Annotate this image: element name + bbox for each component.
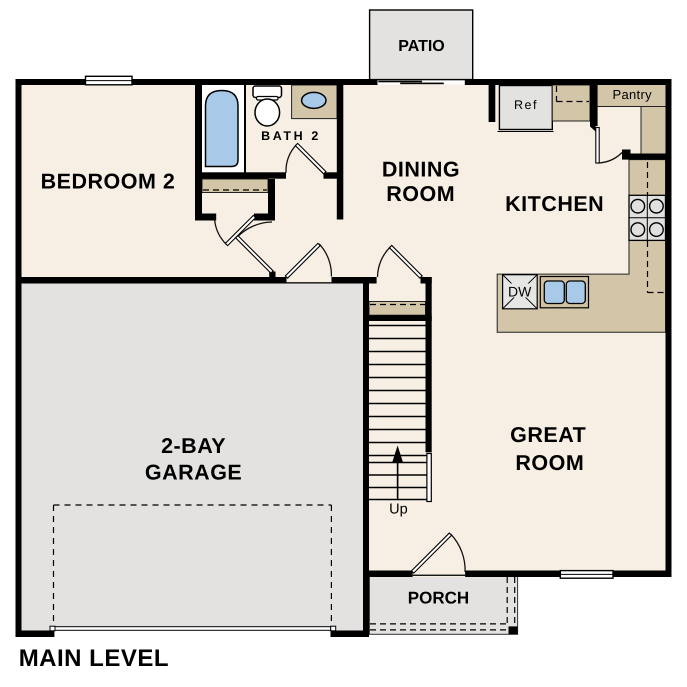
svg-text:ROOM: ROOM: [386, 182, 455, 206]
svg-text:2-BAY: 2-BAY: [161, 434, 226, 458]
svg-text:GARAGE: GARAGE: [145, 461, 242, 485]
svg-text:BATH 2: BATH 2: [261, 129, 321, 143]
svg-text:BEDROOM 2: BEDROOM 2: [41, 169, 176, 193]
svg-text:KITCHEN: KITCHEN: [505, 192, 604, 216]
svg-text:DINING: DINING: [382, 158, 460, 182]
svg-text:PORCH: PORCH: [408, 589, 469, 608]
svg-text:ROOM: ROOM: [515, 451, 584, 475]
svg-text:GREAT: GREAT: [510, 423, 586, 447]
svg-text:Up: Up: [389, 502, 408, 518]
svg-text:MAIN LEVEL: MAIN LEVEL: [19, 645, 169, 672]
svg-text:Pantry: Pantry: [613, 87, 653, 102]
svg-text:Ref: Ref: [514, 98, 538, 112]
svg-text:PATIO: PATIO: [398, 38, 445, 55]
svg-text:DW: DW: [508, 284, 532, 300]
